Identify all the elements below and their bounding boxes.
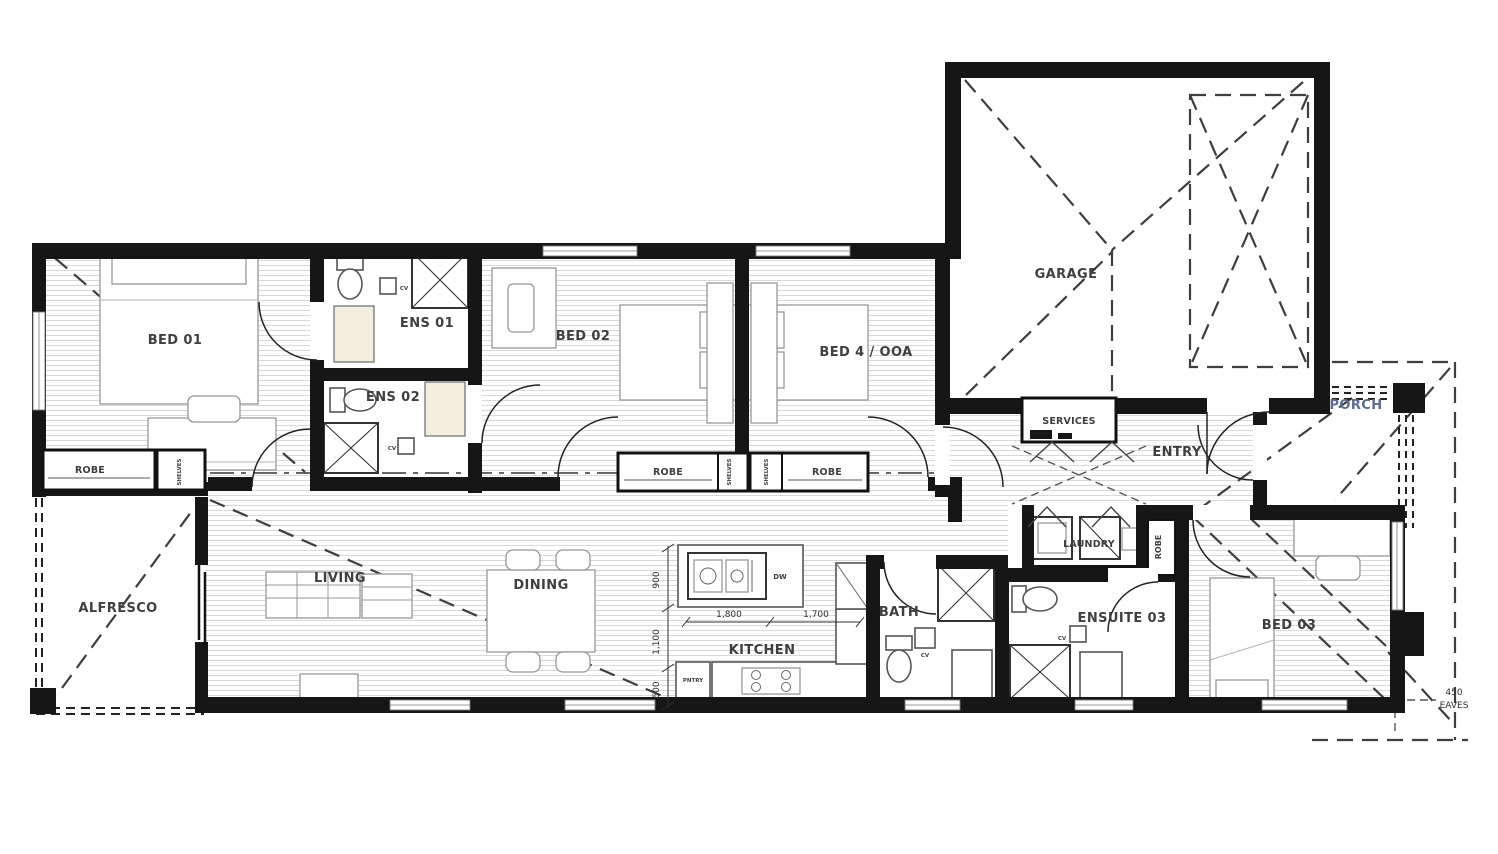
- bed03-bed: [1210, 578, 1274, 702]
- robe-label-bed03: ROBE: [1154, 535, 1163, 560]
- dim-1700: 1,700: [803, 610, 829, 620]
- ens02-cv-box: [398, 438, 414, 454]
- ens01-vanity: [334, 306, 374, 362]
- window: [1392, 522, 1403, 610]
- room-label-bed02: BED 02: [556, 329, 611, 344]
- window: [543, 246, 637, 256]
- room-label-laundry: LAUNDRY: [1063, 539, 1115, 550]
- eaves-label: EAVES: [1440, 701, 1469, 711]
- room-label-bed03: BED 03: [1262, 618, 1317, 633]
- robe-label-bed02: ROBE: [653, 467, 683, 478]
- ens03-vanity: [1080, 652, 1122, 698]
- ens02-vanity: [425, 382, 465, 436]
- room-label-garage: GARAGE: [1035, 267, 1098, 282]
- room-label-ens01: ENS 01: [400, 316, 454, 331]
- room-label-alfresco: ALFRESCO: [78, 601, 157, 616]
- ens02-shower: [324, 423, 378, 473]
- room-label-porch: PORCH: [1329, 398, 1382, 413]
- pantry-label: PNTRY: [683, 678, 704, 684]
- window: [565, 700, 655, 710]
- window: [390, 700, 470, 710]
- ens03-cv-box: [1070, 626, 1086, 642]
- dim-1800: 1,800: [716, 610, 742, 620]
- shelves-label-bed02: SHELVES: [727, 458, 733, 485]
- ens03-shower: [1010, 645, 1070, 699]
- bath-toilet: [886, 636, 912, 682]
- bed01-bed: [100, 252, 258, 404]
- eaves-value: 450: [1445, 688, 1462, 698]
- dim-1100: 1,100: [652, 629, 662, 655]
- bath-vanity: [952, 650, 992, 698]
- robe-label-bed01: ROBE: [75, 465, 105, 476]
- room-label-ens02: ENS 02: [366, 390, 420, 405]
- room-label-ensuite03: ENSUITE 03: [1078, 611, 1167, 626]
- room-label-entry: ENTRY: [1152, 445, 1202, 460]
- bath-cv-box: [915, 628, 935, 648]
- window: [756, 246, 850, 256]
- laundry-trough: [1032, 517, 1072, 559]
- dim-900: 900: [652, 571, 662, 588]
- cv-label-ens03: CV: [1058, 636, 1067, 642]
- room-label-bed01: BED 01: [148, 333, 203, 348]
- washing-machine: [1080, 517, 1140, 559]
- ens01-toilet: [337, 255, 363, 299]
- room-label-kitchen: KITCHEN: [729, 643, 796, 658]
- cv-label-ens02: CV: [388, 446, 397, 452]
- room-label-services: SERVICES: [1042, 416, 1095, 427]
- bed02-desk: [492, 268, 556, 348]
- cv-label-ens01: CV: [400, 286, 409, 292]
- shelves-label-bed4: SHELVES: [764, 458, 770, 485]
- room-label-bed4: BED 4 / OOA: [819, 345, 912, 360]
- dim-600: 600: [652, 681, 662, 698]
- window: [1075, 700, 1133, 710]
- window: [1262, 700, 1347, 710]
- room-label-living: LIVING: [314, 571, 366, 586]
- floor-plan-page: 900 1,100 600 1,800 1,700 450 EAVES BED …: [0, 0, 1498, 854]
- dw-label: DW: [773, 573, 787, 581]
- window: [905, 700, 960, 710]
- ens01-shower: [412, 252, 468, 308]
- window: [33, 312, 45, 410]
- robe-label-bed4: ROBE: [812, 467, 842, 478]
- room-label-bath: BATH: [879, 605, 919, 620]
- ens03-toilet: [1012, 586, 1057, 612]
- bath-shower: [938, 565, 994, 621]
- cv-label-bath: CV: [921, 653, 930, 659]
- room-label-dining: DINING: [513, 578, 568, 593]
- floor-plan-canvas: 900 1,100 600 1,800 1,700 450 EAVES BED …: [0, 0, 1498, 854]
- ens01-cv-box: [380, 278, 396, 294]
- shelves-label-bed01: SHELVES: [177, 458, 183, 485]
